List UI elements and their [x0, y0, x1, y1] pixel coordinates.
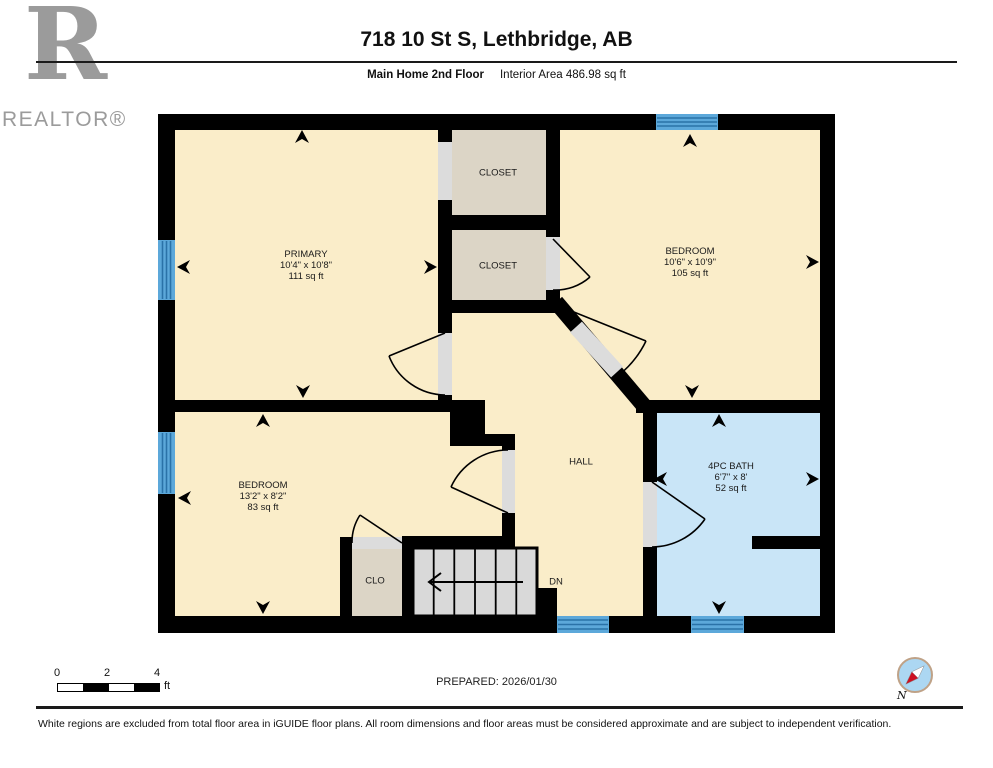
bath-label: 4PC BATH 6'7" x 8' 52 sq ft: [708, 461, 754, 495]
bedroom-lower-label: BEDROOM 13'2" x 8'2" 83 sq ft: [238, 480, 287, 514]
bath-room: [657, 413, 820, 616]
wall-stairs-stub: [537, 588, 557, 616]
closet-mid-label: CLOSET: [479, 260, 517, 271]
bedroom-lower-dims: 13'2" x 8'2": [238, 491, 287, 502]
hall-label: HALL: [569, 456, 593, 467]
stairs: [413, 548, 537, 616]
wall-hall-notch: [450, 400, 485, 446]
bedroom-right-name: BEDROOM: [664, 246, 716, 257]
bedroom-right-dims: 10'6" x 10'9": [664, 257, 716, 268]
bedroom-right-label: BEDROOM 10'6" x 10'9" 105 sq ft: [664, 246, 716, 280]
bath-dims: 6'7" x 8': [708, 472, 754, 483]
door-bedroom-lower: [502, 450, 515, 513]
floorplan-svg: N: [0, 0, 993, 768]
primary-dims: 10'4" x 10'8": [280, 260, 332, 271]
window-primary-left: [158, 240, 175, 300]
bedroom-right-area: 105 sq ft: [664, 269, 716, 280]
bedroom-lower-name: BEDROOM: [238, 480, 287, 491]
bedroom-lower-area: 83 sq ft: [238, 503, 287, 514]
opening-primary-closet: [438, 142, 452, 200]
window-bedroom-left: [158, 432, 175, 494]
wall-bath-north: [636, 400, 835, 413]
clo-label: CLO: [365, 575, 385, 586]
wall-left: [158, 114, 175, 633]
stairs-dn-label: DN: [549, 576, 563, 587]
wall-primary-bottom: [175, 400, 485, 412]
bath-area: 52 sq ft: [708, 484, 754, 495]
window-bath-bottom: [691, 616, 744, 633]
bath-name: 4PC BATH: [708, 461, 754, 472]
wall-clo-left: [340, 537, 352, 616]
prepared-label: PREPARED: 2026/01/30: [0, 676, 993, 688]
primary-area: 111 sq ft: [280, 272, 332, 283]
closet-top-label: CLOSET: [479, 167, 517, 178]
wall-stairs-top: [402, 536, 515, 549]
primary-label: PRIMARY 10'4" x 10'8" 111 sq ft: [280, 249, 332, 283]
wall-top: [158, 114, 835, 130]
footer-rule: [36, 706, 963, 709]
wall-closet2-bottom: [438, 300, 560, 313]
window-hall-bottom: [557, 616, 609, 633]
door-bath: [643, 482, 657, 547]
window-bedroom-top: [656, 114, 718, 130]
door-primary: [438, 333, 452, 395]
wall-closet-right-top: [546, 130, 560, 237]
wall-bath-west-top: [643, 413, 657, 482]
wall-bath-partial: [752, 536, 820, 549]
wall-hall-west-top: [502, 434, 515, 450]
wall-between-closets: [438, 215, 560, 230]
disclaimer-text: White regions are excluded from total fl…: [38, 718, 968, 730]
wall-closet-left-top: [438, 130, 452, 142]
primary-name: PRIMARY: [280, 249, 332, 260]
compass-label: N: [896, 689, 907, 702]
wall-right: [820, 114, 835, 633]
wall-clo-right: [402, 548, 413, 616]
floorplan-page: R REALTOR® 718 10 St S, Lethbridge, AB M…: [0, 0, 993, 768]
wall-bath-west-bottom: [643, 547, 657, 616]
